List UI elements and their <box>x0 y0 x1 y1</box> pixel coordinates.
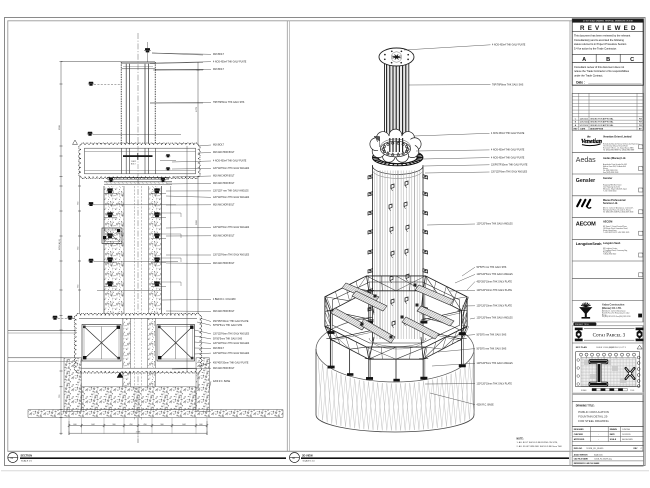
svg-text:S.WONG: S.WONG <box>622 429 630 431</box>
svg-text:ACAD VERSION: ACAD VERSION <box>574 453 588 456</box>
svg-text:Tel: (853) 2882 8888 Fax: (: Tel: (853) 2882 8888 Fax: (853) 2882 888… <box>603 149 634 151</box>
svg-text:5.4 for action by the Trade Co: 5.4 for action by the Trade Contractor. <box>574 47 617 51</box>
svg-text:300: 300 <box>112 424 115 426</box>
svg-text:AECOM: AECOM <box>576 222 596 228</box>
svg-text:M16 ANCHOR BOLT: M16 ANCHOR BOLT <box>213 367 235 370</box>
svg-text:600: 600 <box>199 424 202 426</box>
svg-text:PARCEL 3, LOT 3: PARCEL 3, LOT 3 <box>611 346 626 349</box>
svg-text:Hong Kong: Hong Kong <box>603 252 611 254</box>
svg-text:2. ALL FILLET WELDED SHOULD B: 2. ALL FILLET WELDED SHOULD BE 3mm THK. <box>517 445 563 448</box>
svg-text:M16 ANCHOR BOLT: M16 ANCHOR BOLT <box>213 175 235 178</box>
svg-text:M16 BOLT: M16 BOLT <box>213 69 225 71</box>
svg-text:This document has been reviewe: This document has been reviewed by the r… <box>574 34 630 38</box>
svg-text:FOR STEEL DRAWING: FOR STEEL DRAWING <box>578 419 609 423</box>
svg-text:Aedas (Macau) Ltd.: Aedas (Macau) Ltd. <box>603 157 626 160</box>
svg-text:120*120*10mm THK GALV PLATE: 120*120*10mm THK GALV PLATE <box>477 289 513 292</box>
svg-text:Date :: Date : <box>576 80 585 84</box>
svg-text:PM: PM <box>639 118 642 120</box>
svg-text:Tel: (853) 2875 3088 Fax: (85: Tel: (853) 2875 3088 Fax: (853) 2875 303… <box>603 212 633 214</box>
svg-text:KEY PLAN: KEY PLAN <box>576 346 587 349</box>
svg-text:M16 ANCHOR BOLT: M16 ANCHOR BOLT <box>213 235 235 238</box>
svg-text:DRAWN: DRAWN <box>610 428 618 431</box>
svg-text:T +852 2891 1551 F +852 28: T +852 2891 1551 F +852 2891 2021 <box>603 232 629 234</box>
svg-text:PM: PM <box>639 122 642 124</box>
svg-text:SCALE: SCALE <box>610 438 617 441</box>
svg-text:300: 300 <box>160 424 163 426</box>
svg-text:10-1 Roppongi 6-chome: 10-1 Roppongi 6-chome <box>603 186 620 188</box>
svg-text:450: 450 <box>129 424 132 426</box>
svg-text:120*120* mm THK GALV ANGLES: 120*120* mm THK GALV ANGLES <box>213 190 249 193</box>
svg-text:4200 R.C. BASE: 4200 R.C. BASE <box>213 380 231 383</box>
svg-text:120*120*6mm THK GALV ANGLES: 120*120*6mm THK GALV ANGLES <box>477 223 514 226</box>
svg-text:DRAWING TITLE:: DRAWING TITLE: <box>576 405 595 408</box>
svg-text:Consultant review of this docu: Consultant review of this document does … <box>574 65 624 69</box>
svg-text:5/12/2014: 5/12/2014 <box>580 125 588 127</box>
svg-text:5132B_FD_B5099: 5132B_FD_B5099 <box>586 448 604 450</box>
svg-text:ISSUED FOR APPROVAL: ISSUED FOR APPROVAL <box>590 124 614 127</box>
svg-text:M16 ANCHOR BOLT: M16 ANCHOR BOLT <box>213 182 235 185</box>
svg-text:120*120*6mm THK GALV ANGLES: 120*120*6mm THK GALV ANGLES <box>477 273 514 276</box>
svg-text:AS SHOWN: AS SHOWN <box>622 438 633 441</box>
svg-text:DATE: DATE <box>580 128 586 131</box>
svg-text:450: 450 <box>143 424 146 426</box>
svg-text:50*50*5 mm THK GALV SHS: 50*50*5 mm THK GALV SHS <box>477 347 507 350</box>
svg-text:Macau: Macau <box>603 168 608 170</box>
svg-text:A: A <box>582 57 586 63</box>
svg-text:LangdonSeah: LangdonSeah <box>576 241 602 246</box>
svg-text:under the Trade Contract.: under the Trade Contract. <box>574 73 603 77</box>
svg-text:M16 BOLT: M16 BOLT <box>213 145 225 147</box>
svg-text:DESIGNED: DESIGNED <box>574 429 585 431</box>
svg-text:14/1/2015: 14/1/2015 <box>622 434 630 436</box>
svg-text:C: C <box>630 57 634 63</box>
svg-text:SECTION: SECTION <box>21 454 33 458</box>
svg-text:APPROVED: APPROVED <box>574 438 585 441</box>
svg-text:(Macau) CO. LTD.: (Macau) CO. LTD. <box>602 307 622 310</box>
svg-text:120*120*6mm THK GALV ANGLES: 120*120*6mm THK GALV ANGLES <box>477 362 514 365</box>
svg-text:ISSUED FOR APPROVAL: ISSUED FOR APPROVAL <box>590 121 614 124</box>
svg-text:AECOM: AECOM <box>603 220 612 223</box>
svg-text:SCALE 1:5: SCALE 1:5 <box>21 460 33 463</box>
svg-text:750 TYP: 750 TYP <box>106 284 114 286</box>
svg-text:120*120*6mm THK GALV ANGLES: 120*120*6mm THK GALV ANGLES <box>213 254 250 257</box>
svg-text:T6P/T6P8mm THK GALV SHS: T6P/T6P8mm THK GALV SHS <box>213 101 245 104</box>
svg-text:Gensler: Gensler <box>576 178 595 184</box>
svg-text:DWG NO: DWG NO <box>574 448 583 450</box>
svg-text:3D VIEW: 3D VIEW <box>302 454 313 458</box>
svg-text:14/1/2015: 14/1/2015 <box>580 118 588 120</box>
svg-text:Roppongi Hills Mori Tower: Roppongi Hills Mori Tower <box>603 184 622 186</box>
svg-text:T +81 3 6743 2550: T +81 3 6743 2550 <box>603 190 617 192</box>
svg-text:120*120*6mm THK GALV ANGLES: 120*120*6mm THK GALV ANGLES <box>213 342 250 345</box>
svg-text:1:500: 1:500 <box>630 390 634 392</box>
svg-text:50*50*5 mm THK GALV SHS: 50*50*5 mm THK GALV SHS <box>477 333 507 336</box>
svg-text:Venetian Orient Limited: Venetian Orient Limited <box>603 134 632 138</box>
svg-text:B: B <box>606 57 610 63</box>
svg-text:4 NOS 450x4 THK GALV PLATE: 4 NOS 450x4 THK GALV PLATE <box>491 132 525 135</box>
svg-text:4 NOS 450x4 THK GALV PLATE: 4 NOS 450x4 THK GALV PLATE <box>491 156 525 159</box>
svg-text:450*200*10mm THK GALV PLATE: 450*200*10mm THK GALV PLATE <box>477 280 513 283</box>
svg-text:Aedas: Aedas <box>576 157 596 164</box>
svg-text:ACAD2010: ACAD2010 <box>594 453 603 456</box>
svg-text:M16 BOLT: M16 BOLT <box>213 348 225 350</box>
svg-text:Tel: (853) 2833 1113: Tel: (853) 2833 1113 <box>603 170 617 172</box>
svg-text:120*120*6mm THK GALV ANGLES: 120*120*6mm THK GALV ANGLES <box>477 317 514 320</box>
svg-text:CAD FILE NAME: CAD FILE NAME <box>574 458 589 461</box>
svg-text:50*50*5mm THK GALV SHS: 50*50*5mm THK GALV SHS <box>213 324 243 327</box>
svg-text:600: 600 <box>73 424 76 426</box>
svg-text:ISSUED FOR APPROVAL: ISSUED FOR APPROVAL <box>590 117 614 120</box>
svg-text:relieve the Trade Contractor o: relieve the Trade Contractor of its resp… <box>574 69 630 73</box>
svg-text:DESCRIPTION: DESCRIPTION <box>590 129 604 131</box>
svg-text:REFERENCE CAD FILE NAME: REFERENCE CAD FILE NAME <box>574 462 600 465</box>
svg-text:SCALE: SCALE <box>581 389 587 392</box>
svg-text:844: 844 <box>91 424 94 426</box>
svg-text:Consultants(s) and is accorded: Consultants(s) and is accorded the follo… <box>574 38 625 42</box>
svg-text:50*50*5 mm THK GALV SHS: 50*50*5 mm THK GALV SHS <box>477 266 507 269</box>
svg-text:4 NOS 450x4 THK GALV PLATE: 4 NOS 450x4 THK GALV PLATE <box>492 44 526 47</box>
svg-text:Gensler: Gensler <box>603 177 612 180</box>
svg-text:PM: PM <box>639 125 642 127</box>
svg-text:M16 BOLT: M16 BOLT <box>213 54 225 56</box>
svg-text:4 NOS 450x4 THK GALV PLATE: 4 NOS 450x4 THK GALV PLATE <box>213 60 247 63</box>
svg-text:450*450*20mm THK GALV PLATE: 450*450*20mm THK GALV PLATE <box>213 320 249 323</box>
svg-text:4 NOS 450x4 THK GALV PLATE: 4 NOS 450x4 THK GALV PLATE <box>491 149 525 152</box>
svg-text:450*450*20mm THK GALV PLATE: 450*450*20mm THK GALV PLATE <box>213 361 249 364</box>
svg-text:DO NOT SCALE DRAWING. VERIFY A: DO NOT SCALE DRAWING. VERIFY ALL DIMENSI… <box>583 20 634 23</box>
svg-text:4 NOS 450x4 THK GALV PLATE: 4 NOS 450x4 THK GALV PLATE <box>213 160 247 163</box>
svg-text:M16 ANCHOR BOLT: M16 ANCHOR BOLT <box>213 204 235 207</box>
svg-text:Langdon Seah: Langdon Seah <box>603 242 621 245</box>
svg-text:120*120*6mm THK GALV ANGLES: 120*120*6mm THK GALV ANGLES <box>213 196 250 199</box>
svg-text:120*120*6mm THK GALV ANGLES: 120*120*6mm THK GALV ANGLES <box>491 171 528 174</box>
svg-text:CHECKED: CHECKED <box>574 434 584 436</box>
svg-text:status referred to in Project: status referred to in Project Procedure … <box>574 42 627 46</box>
svg-text:DATE: DATE <box>610 433 616 436</box>
svg-text:120*120*10mm THK GALV PLATE: 120*120*10mm THK GALV PLATE <box>477 382 513 385</box>
svg-text:12/12/2014: 12/12/2014 <box>580 122 589 124</box>
svg-text:Fax: (853) 2833 1533: Fax: (853) 2833 1533 <box>603 172 618 174</box>
svg-text:T (852) 2830 3500: T (852) 2830 3500 <box>603 254 616 256</box>
svg-text:NOTE:: NOTE: <box>517 439 524 441</box>
svg-text:4200 R.C. BASE: 4200 R.C. BASE <box>477 403 495 406</box>
svg-text:4 BED R.C. COLUMN: 4 BED R.C. COLUMN <box>213 299 236 301</box>
svg-text:50*50*5mm THK GALV SHS: 50*50*5mm THK GALV SHS <box>213 338 243 341</box>
svg-text:M16 ANCHOR BOLT: M16 ANCHOR BOLT <box>213 151 235 154</box>
svg-text:Macau: Macau <box>602 314 607 316</box>
svg-text:1778: 1778 <box>196 106 198 112</box>
svg-text:M16 ANCHOR BOLT: M16 ANCHOR BOLT <box>213 262 235 265</box>
svg-text:Tel:(853) 2870 3215 Fax:(853): Tel:(853) 2870 3215 Fax:(853) 2870 3216 <box>602 316 631 318</box>
svg-text:120P/STP10mm THK GALV PLATE: 120P/STP10mm THK GALV PLATE <box>491 164 528 167</box>
svg-text:Services Ltd.: Services Ltd. <box>603 202 618 205</box>
svg-text:3250 (A) (L): 3250 (A) (L) <box>58 239 61 250</box>
svg-text:SCALE 1:10: SCALE 1:10 <box>303 460 316 463</box>
svg-text:5132B_FD_B5099.dwg: 5132B_FD_B5099.dwg <box>594 459 612 461</box>
svg-text:M16 ANCHOR BOLT: M16 ANCHOR BOLT <box>213 310 235 313</box>
svg-text:T6P/T6P8mm THK GALV SHS: T6P/T6P8mm THK GALV SHS <box>492 83 524 86</box>
svg-text:Cᴏᴛᴀɪ Pᴀʀᴄᴇʟ 3: Cᴏᴛᴀɪ Pᴀʀᴄᴇʟ 3 <box>593 333 626 339</box>
svg-text:750 TYP: 750 TYP <box>152 284 160 286</box>
svg-text:120*120*6mm THK GALV ANGLES: 120*120*6mm THK GALV ANGLES <box>213 333 250 336</box>
svg-text:844: 844 <box>182 424 185 426</box>
svg-text:2600: 2600 <box>196 219 198 225</box>
svg-text:120*120*6mm THK GALV ANGLES: 120*120*6mm THK GALV ANGLES <box>213 352 250 355</box>
svg-text:120*120*10mm THK GALV PLATE: 120*120*10mm THK GALV PLATE <box>477 305 513 308</box>
svg-text:120*120*6mm THK GALV ANGLES: 120*120*6mm THK GALV ANGLES <box>213 226 250 229</box>
svg-text:1. ALL BOLT SHOULD BE FIXING: 1. ALL BOLT SHOULD BE FIXING ON SITE, <box>517 441 559 444</box>
svg-text:120*120*6mm THK GALV ANGLES: 120*120*6mm THK GALV ANGLES <box>213 167 250 170</box>
